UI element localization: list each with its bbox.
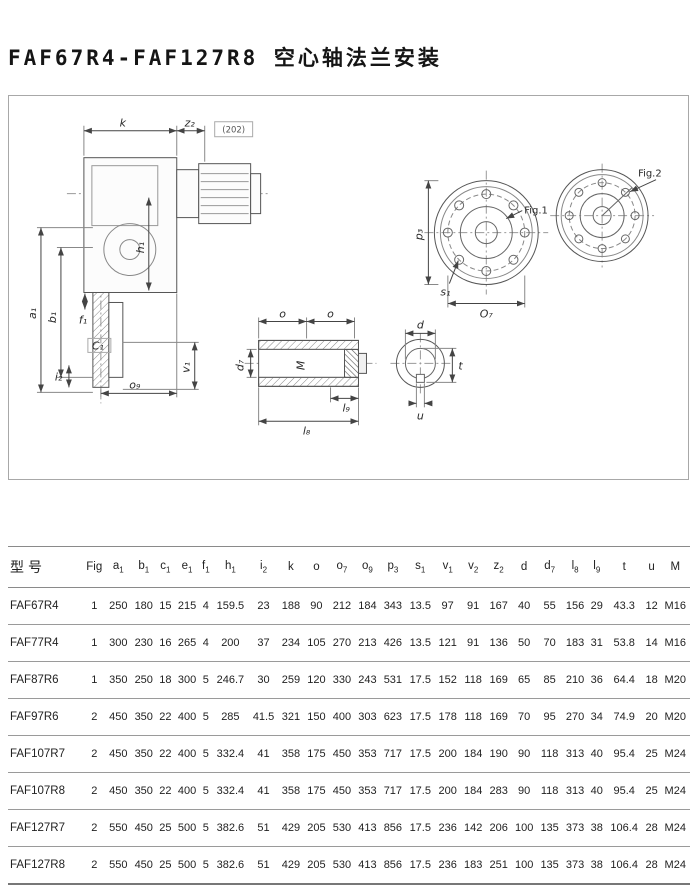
col-header-d: d [511, 547, 536, 588]
value-cell: 400 [174, 773, 199, 810]
value-cell: 450 [106, 736, 131, 773]
value-cell: 400 [174, 699, 199, 736]
value-cell: 22 [156, 699, 174, 736]
value-cell: 30 [249, 662, 278, 699]
value-cell: 38 [588, 810, 606, 847]
dim-label-i2: i₂ [55, 370, 63, 383]
dimension-table: 型号Figa1b1c1e1f1h1i2koo7o9p3s1v1v2z2dd7l8… [8, 546, 690, 885]
value-cell: 16 [156, 625, 174, 662]
value-cell: 413 [355, 847, 380, 885]
value-cell: 531 [380, 662, 405, 699]
value-cell: 500 [174, 847, 199, 885]
value-cell: 23 [249, 588, 278, 625]
value-cell: 184 [460, 736, 485, 773]
value-cell: 5 [200, 736, 212, 773]
value-cell: 450 [329, 773, 354, 810]
value-cell: 14 [643, 625, 661, 662]
dimension-drawing-svg: k z₂ (202) a₁ b₁ h₁ v₁ f₁ C₁ i₂ o₉ [9, 96, 688, 479]
value-cell: 426 [380, 625, 405, 662]
fig1-label: Fig.1 [524, 206, 548, 217]
value-cell: 142 [460, 810, 485, 847]
value-cell: 343 [380, 588, 405, 625]
value-cell: 28 [643, 810, 661, 847]
table-row: FAF127R82550450255005382.651429205530413… [8, 847, 690, 885]
technical-drawing: k z₂ (202) a₁ b₁ h₁ v₁ f₁ C₁ i₂ o₉ [8, 95, 689, 480]
value-cell: 18 [643, 662, 661, 699]
value-cell: 717 [380, 773, 405, 810]
value-cell: 38 [588, 847, 606, 885]
value-cell: 136 [486, 625, 511, 662]
value-cell: 205 [304, 847, 329, 885]
model-cell: FAF67R4 [8, 588, 83, 625]
value-cell: 358 [278, 773, 303, 810]
value-cell: 856 [380, 810, 405, 847]
dim-note-202: (202) [222, 125, 245, 135]
value-cell: 51 [249, 847, 278, 885]
value-cell: 236 [435, 847, 460, 885]
dim-label-h1: h₁ [134, 242, 147, 253]
value-cell: 4 [200, 625, 212, 662]
value-cell: 303 [355, 699, 380, 736]
table-row: FAF107R82450350224005332.441358175450353… [8, 773, 690, 810]
value-cell: 2 [83, 736, 106, 773]
col-header-model: 型号 [8, 547, 83, 588]
value-cell: 856 [380, 847, 405, 885]
value-cell: M24 [661, 736, 691, 773]
value-cell: 120 [304, 662, 329, 699]
dim-label-a1: a₁ [26, 308, 39, 319]
value-cell: 37 [249, 625, 278, 662]
value-cell: 121 [435, 625, 460, 662]
value-cell: 382.6 [212, 810, 249, 847]
dim-label-z2: z₂ [184, 117, 196, 130]
dim-label-l9: l₉ [343, 401, 351, 414]
value-cell: 1 [83, 588, 106, 625]
table-row: FAF87R61350250183005246.7302591203302435… [8, 662, 690, 699]
col-header-o9: o9 [355, 547, 380, 588]
table-row: FAF67R41250180152154159.5231889021218434… [8, 588, 690, 625]
col-header-u: u [643, 547, 661, 588]
value-cell: 22 [156, 736, 174, 773]
value-cell: 332.4 [212, 773, 249, 810]
col-header-o: o [304, 547, 329, 588]
value-cell: 28 [643, 847, 661, 885]
value-cell: 500 [174, 810, 199, 847]
value-cell: 169 [486, 699, 511, 736]
value-cell: M24 [661, 773, 691, 810]
value-cell: 313 [562, 773, 587, 810]
value-cell: 31 [588, 625, 606, 662]
value-cell: 64.4 [606, 662, 643, 699]
value-cell: 251 [486, 847, 511, 885]
col-header-b1: b1 [131, 547, 156, 588]
value-cell: 180 [131, 588, 156, 625]
shaft-cross-section [390, 329, 456, 407]
dim-label-m: M [295, 360, 308, 370]
value-cell: 25 [643, 773, 661, 810]
model-cell: FAF77R4 [8, 625, 83, 662]
value-cell: 550 [106, 847, 131, 885]
col-header-f1: f1 [200, 547, 212, 588]
value-cell: 20 [643, 699, 661, 736]
page-title: FAF67R4-FAF127R8 空心轴法兰安装 [0, 0, 698, 72]
col-header-l8: l8 [562, 547, 587, 588]
value-cell: 70 [537, 625, 562, 662]
dim-label-o9: o₉ [129, 378, 141, 391]
value-cell: 43.3 [606, 588, 643, 625]
dim-label-d7: d₇ [234, 359, 247, 371]
value-cell: 250 [106, 588, 131, 625]
col-header-s1: s1 [406, 547, 435, 588]
value-cell: 350 [131, 699, 156, 736]
value-cell: 95.4 [606, 736, 643, 773]
value-cell: 1 [83, 625, 106, 662]
value-cell: 106.4 [606, 810, 643, 847]
value-cell: 15 [156, 588, 174, 625]
value-cell: 353 [355, 736, 380, 773]
col-header-c1: c1 [156, 547, 174, 588]
value-cell: 2 [83, 773, 106, 810]
col-header-p3: p3 [380, 547, 405, 588]
col-header-v1: v1 [435, 547, 460, 588]
value-cell: 118 [537, 773, 562, 810]
value-cell: 91 [460, 625, 485, 662]
value-cell: 400 [174, 736, 199, 773]
dim-label-d: d [417, 318, 425, 331]
col-header-a1: a1 [106, 547, 131, 588]
value-cell: 5 [200, 699, 212, 736]
value-cell: 5 [200, 773, 212, 810]
value-cell: 332.4 [212, 736, 249, 773]
value-cell: 206 [486, 810, 511, 847]
col-header-t: t [606, 547, 643, 588]
value-cell: 74.9 [606, 699, 643, 736]
model-cell: FAF107R8 [8, 773, 83, 810]
value-cell: 41.5 [249, 699, 278, 736]
value-cell: 135 [537, 810, 562, 847]
value-cell: 5 [200, 810, 212, 847]
value-cell: 285 [212, 699, 249, 736]
value-cell: M16 [661, 625, 691, 662]
value-cell: 13.5 [406, 588, 435, 625]
value-cell: 4 [200, 588, 212, 625]
value-cell: 358 [278, 736, 303, 773]
dim-label-p3: p₃ [412, 228, 425, 241]
value-cell: 183 [460, 847, 485, 885]
value-cell: 17.5 [406, 810, 435, 847]
value-cell: 212 [329, 588, 354, 625]
value-cell: 373 [562, 810, 587, 847]
value-cell: 183 [562, 625, 587, 662]
value-cell: 213 [355, 625, 380, 662]
value-cell: 243 [355, 662, 380, 699]
value-cell: 178 [435, 699, 460, 736]
value-cell: 175 [304, 736, 329, 773]
table-row: FAF107R72450350224005332.441358175450353… [8, 736, 690, 773]
value-cell: 90 [304, 588, 329, 625]
value-cell: 717 [380, 736, 405, 773]
col-header-l9: l9 [588, 547, 606, 588]
value-cell: 429 [278, 810, 303, 847]
dim-label-l8: l₈ [303, 424, 311, 437]
value-cell: 51 [249, 810, 278, 847]
value-cell: 300 [174, 662, 199, 699]
value-cell: 246.7 [212, 662, 249, 699]
value-cell: 17.5 [406, 699, 435, 736]
value-cell: 5 [200, 662, 212, 699]
col-header-h1: h1 [212, 547, 249, 588]
value-cell: 550 [106, 810, 131, 847]
value-cell: 530 [329, 810, 354, 847]
value-cell: 100 [511, 810, 536, 847]
model-cell: FAF87R6 [8, 662, 83, 699]
model-cell: FAF107R7 [8, 736, 83, 773]
value-cell: 41 [249, 736, 278, 773]
col-header-k: k [278, 547, 303, 588]
col-header-e1: e1 [174, 547, 199, 588]
value-cell: 40 [588, 736, 606, 773]
value-cell: 210 [562, 662, 587, 699]
value-cell: 313 [562, 736, 587, 773]
value-cell: 413 [355, 810, 380, 847]
value-cell: 167 [486, 588, 511, 625]
value-cell: 321 [278, 699, 303, 736]
table-row: FAF127R72550450255005382.651429205530413… [8, 810, 690, 847]
value-cell: 95.4 [606, 773, 643, 810]
value-cell: 450 [106, 699, 131, 736]
value-cell: 118 [537, 736, 562, 773]
value-cell: 25 [156, 847, 174, 885]
value-cell: 50 [511, 625, 536, 662]
value-cell: 184 [355, 588, 380, 625]
spec-table-body: FAF67R41250180152154159.5231889021218434… [8, 588, 690, 885]
value-cell: 13.5 [406, 625, 435, 662]
value-cell: 70 [511, 699, 536, 736]
col-header-fig: Fig [83, 547, 106, 588]
value-cell: 190 [486, 736, 511, 773]
value-cell: 188 [278, 588, 303, 625]
col-header-i2: i2 [249, 547, 278, 588]
value-cell: 17.5 [406, 662, 435, 699]
value-cell: 106.4 [606, 847, 643, 885]
value-cell: 85 [537, 662, 562, 699]
value-cell: 90 [511, 736, 536, 773]
model-cell: FAF97R6 [8, 699, 83, 736]
value-cell: 12 [643, 588, 661, 625]
value-cell: 382.6 [212, 847, 249, 885]
value-cell: 250 [131, 662, 156, 699]
value-cell: 159.5 [212, 588, 249, 625]
value-cell: 330 [329, 662, 354, 699]
value-cell: 25 [643, 736, 661, 773]
value-cell: 135 [537, 847, 562, 885]
model-cell: FAF127R7 [8, 810, 83, 847]
value-cell: 259 [278, 662, 303, 699]
dim-label-f1: f₁ [79, 313, 87, 326]
value-cell: 100 [511, 847, 536, 885]
value-cell: 22 [156, 773, 174, 810]
dim-label-u: u [417, 409, 424, 422]
dim-label-t: t [458, 359, 463, 372]
value-cell: 65 [511, 662, 536, 699]
value-cell: M24 [661, 847, 691, 885]
value-cell: 175 [304, 773, 329, 810]
value-cell: 530 [329, 847, 354, 885]
catalog-page: FAF67R4-FAF127R8 空心轴法兰安装 [0, 0, 698, 893]
value-cell: 91 [460, 588, 485, 625]
value-cell: 450 [106, 773, 131, 810]
table-row: FAF97R6245035022400528541.53211504003036… [8, 699, 690, 736]
value-cell: 2 [83, 847, 106, 885]
value-cell: 55 [537, 588, 562, 625]
value-cell: 40 [588, 773, 606, 810]
value-cell: 236 [435, 810, 460, 847]
col-header-v2: v2 [460, 547, 485, 588]
value-cell: 450 [131, 810, 156, 847]
value-cell: 350 [131, 736, 156, 773]
spec-table-head-row: 型号Figa1b1c1e1f1h1i2koo7o9p3s1v1v2z2dd7l8… [8, 547, 690, 588]
value-cell: 118 [460, 699, 485, 736]
value-cell: 234 [278, 625, 303, 662]
value-cell: 5 [200, 847, 212, 885]
table-row: FAF77R4130023016265420037234105270213426… [8, 625, 690, 662]
dim-label-o7: O₇ [480, 307, 494, 320]
value-cell: 270 [562, 699, 587, 736]
value-cell: 200 [435, 773, 460, 810]
value-cell: 450 [329, 736, 354, 773]
value-cell: 623 [380, 699, 405, 736]
value-cell: 152 [435, 662, 460, 699]
value-cell: 429 [278, 847, 303, 885]
col-header-o7: o7 [329, 547, 354, 588]
value-cell: 2 [83, 699, 106, 736]
value-cell: 18 [156, 662, 174, 699]
value-cell: 353 [355, 773, 380, 810]
col-header-z2: z2 [486, 547, 511, 588]
value-cell: 90 [511, 773, 536, 810]
value-cell: 350 [106, 662, 131, 699]
value-cell: 41 [249, 773, 278, 810]
hollow-shaft-section [245, 317, 377, 425]
value-cell: 205 [304, 810, 329, 847]
value-cell: 373 [562, 847, 587, 885]
value-cell: M16 [661, 588, 691, 625]
value-cell: 200 [435, 736, 460, 773]
dim-label-o-right: o [327, 307, 334, 320]
col-header-d7: d7 [537, 547, 562, 588]
dim-label-s1: s₁ [440, 285, 450, 298]
value-cell: 156 [562, 588, 587, 625]
value-cell: 215 [174, 588, 199, 625]
value-cell: 450 [131, 847, 156, 885]
value-cell: 17.5 [406, 847, 435, 885]
value-cell: 1 [83, 662, 106, 699]
value-cell: 2 [83, 810, 106, 847]
value-cell: 118 [460, 662, 485, 699]
value-cell: 184 [460, 773, 485, 810]
value-cell: 17.5 [406, 773, 435, 810]
model-cell: FAF127R8 [8, 847, 83, 885]
dim-label-v1: v₁ [180, 362, 193, 373]
dim-label-o-left: o [279, 307, 286, 320]
value-cell: M20 [661, 699, 691, 736]
value-cell: 283 [486, 773, 511, 810]
value-cell: 25 [156, 810, 174, 847]
value-cell: 53.8 [606, 625, 643, 662]
fig2-label: Fig.2 [638, 169, 662, 180]
value-cell: 34 [588, 699, 606, 736]
value-cell: 40 [511, 588, 536, 625]
value-cell: 200 [212, 625, 249, 662]
value-cell: 105 [304, 625, 329, 662]
value-cell: 265 [174, 625, 199, 662]
dimension-table-head: 型号Figa1b1c1e1f1h1i2koo7o9p3s1v1v2z2dd7l8… [8, 547, 690, 588]
value-cell: 150 [304, 699, 329, 736]
value-cell: M24 [661, 810, 691, 847]
value-cell: 17.5 [406, 736, 435, 773]
col-header-M: M [661, 547, 691, 588]
value-cell: 169 [486, 662, 511, 699]
dim-label-c1: C₁ [92, 339, 104, 352]
dim-label-k: k [120, 117, 127, 130]
value-cell: 400 [329, 699, 354, 736]
value-cell: 230 [131, 625, 156, 662]
value-cell: 36 [588, 662, 606, 699]
value-cell: 300 [106, 625, 131, 662]
value-cell: 350 [131, 773, 156, 810]
dim-label-b1: b₁ [46, 312, 59, 323]
value-cell: 95 [537, 699, 562, 736]
value-cell: 97 [435, 588, 460, 625]
value-cell: M20 [661, 662, 691, 699]
value-cell: 270 [329, 625, 354, 662]
value-cell: 29 [588, 588, 606, 625]
